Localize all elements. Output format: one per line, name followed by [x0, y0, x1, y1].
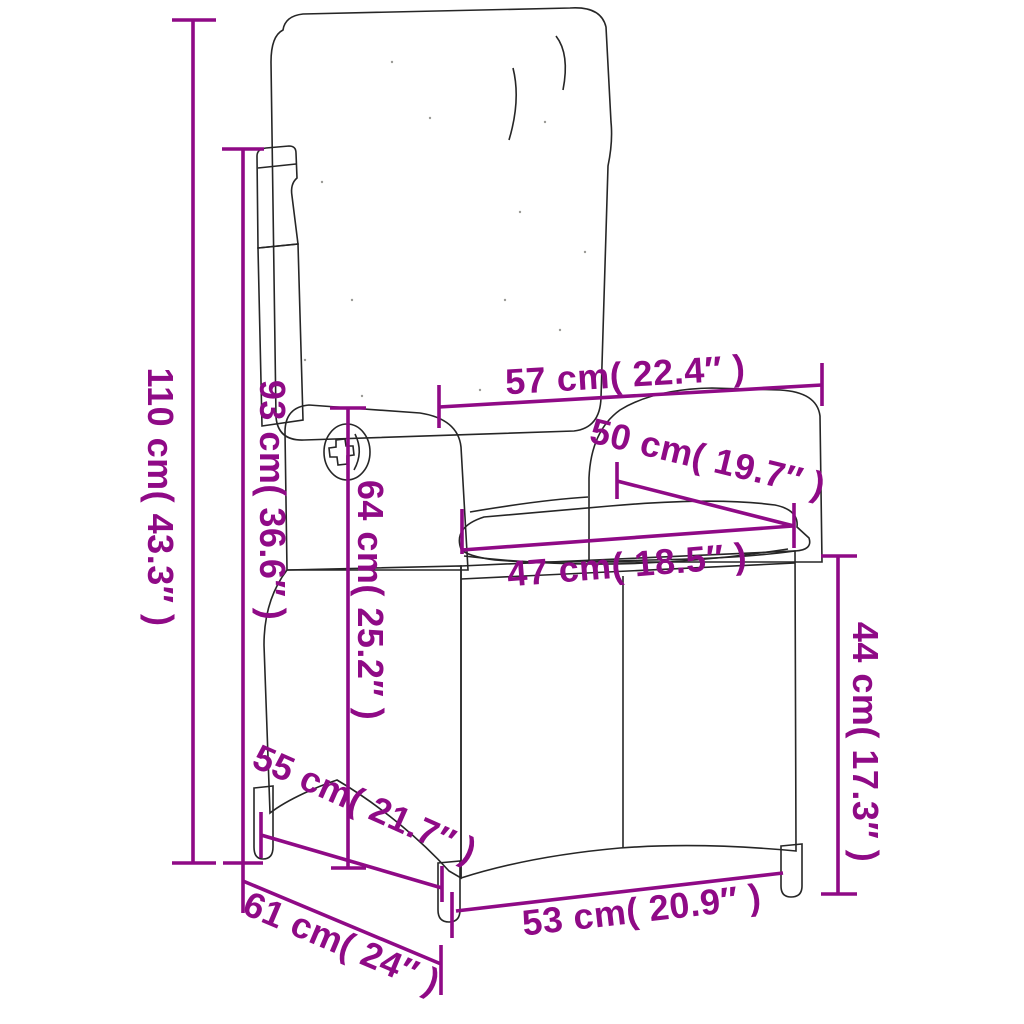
- dimension-label-base-depth: 61 cm( 24″ ): [238, 883, 447, 1003]
- cushion-strap: [258, 164, 296, 168]
- chair-leg-front-right: [781, 844, 802, 897]
- dimension-seat-width: 47 cm( 18.5″ ): [462, 509, 793, 594]
- dimension-base-height: 44 cm( 17.3″ ): [821, 556, 886, 894]
- dimension-seat-depth: 55 cm( 21.7″ ): [247, 736, 483, 902]
- chair-base-front: [461, 551, 796, 878]
- dimension-label-backrest-width: 50 cm( 19.7″ ): [586, 410, 829, 506]
- dimension-diagram: 110 cm( 43.3″ )93 cm( 36.6″ )57 cm( 22.4…: [0, 0, 1024, 1024]
- dimension-label-total-height: 110 cm( 43.3″ ): [140, 368, 181, 627]
- dimension-label-top-width: 57 cm( 22.4″ ): [504, 347, 746, 403]
- cushion-stipple: [304, 61, 586, 397]
- dimension-top-width: 57 cm( 22.4″ ): [439, 347, 822, 428]
- dimension-label-seat-depth: 55 cm( 21.7″ ): [247, 736, 483, 871]
- dimension-base-depth: 61 cm( 24″ ): [238, 863, 447, 1002]
- dimension-label-base-width: 53 cm( 20.9″ ): [520, 876, 763, 944]
- chair-backrest-post-top: [257, 146, 298, 248]
- diagram-canvas: 110 cm( 43.3″ )93 cm( 36.6″ )57 cm( 22.4…: [0, 0, 1024, 1024]
- dimension-label-base-height: 44 cm( 17.3″ ): [845, 622, 886, 862]
- dimension-total-height: 110 cm( 43.3″ ): [140, 20, 216, 863]
- dimension-label-armrest-height: 64 cm( 25.2″ ): [350, 480, 391, 720]
- dimension-layer: 110 cm( 43.3″ )93 cm( 36.6″ )57 cm( 22.4…: [140, 20, 886, 1002]
- cushion-crease: [556, 36, 565, 90]
- dimension-label-backrest-height: 93 cm( 36.6″ ): [252, 380, 293, 620]
- cushion-crease: [509, 68, 516, 140]
- dimension-base-width: 53 cm( 20.9″ ): [452, 873, 783, 944]
